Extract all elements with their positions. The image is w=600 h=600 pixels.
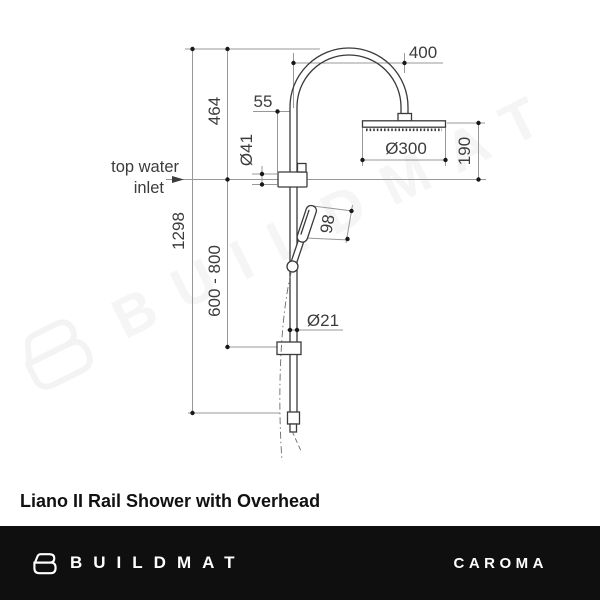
caroma-wordmark: CAROMA — [454, 555, 549, 572]
holder-ball-joint — [287, 261, 298, 272]
overhead-shower-head — [363, 121, 446, 127]
inlet-label-line1: top water — [111, 158, 179, 176]
inlet-label-line2: inlet — [134, 179, 165, 197]
dim-handset-length-label: 98 — [317, 213, 339, 235]
buildmat-wordmark: BUILDMAT — [70, 553, 246, 573]
dim-rail-offset-label: 55 — [254, 92, 273, 111]
hand-shower-head — [296, 204, 318, 243]
footer-bar: BUILDMAT CAROMA — [0, 526, 600, 600]
buildmat-ribbon-icon — [30, 550, 60, 577]
dim-bracket-dia-label: Ø41 — [237, 134, 256, 166]
buildmat-logo: BUILDMAT — [30, 550, 246, 577]
rail-end-tip — [290, 424, 297, 432]
dim-head-drop-label: 190 — [455, 137, 474, 165]
dim-arm-reach-label: 400 — [409, 43, 437, 62]
technical-drawing: 400 464 55 Ø41 Ø300 190 1298 600 - 800 9… — [0, 0, 600, 545]
rail-end-cap — [288, 412, 300, 424]
wall-bracket — [278, 172, 307, 187]
shower-hose — [280, 273, 291, 461]
inlet-connector — [298, 164, 307, 173]
product-spec-sheet: BUILDMAT — [0, 0, 600, 600]
gooseneck-arm — [290, 48, 408, 107]
dim-rail-dia-label: Ø21 — [307, 311, 339, 330]
dim-overall-height-label: 1298 — [169, 212, 188, 250]
head-connector — [398, 114, 412, 122]
dim-top-to-inlet-label: 464 — [205, 97, 224, 125]
page-title: Liano II Rail Shower with Overhead — [20, 491, 320, 512]
dim-handset-range-label: 600 - 800 — [205, 245, 224, 317]
shower-outline — [277, 48, 446, 461]
slider-bracket — [277, 342, 301, 355]
inlet-arrow-icon — [172, 176, 184, 183]
hand-shower — [288, 204, 318, 266]
dim-head-dia-label: Ø300 — [385, 139, 427, 158]
